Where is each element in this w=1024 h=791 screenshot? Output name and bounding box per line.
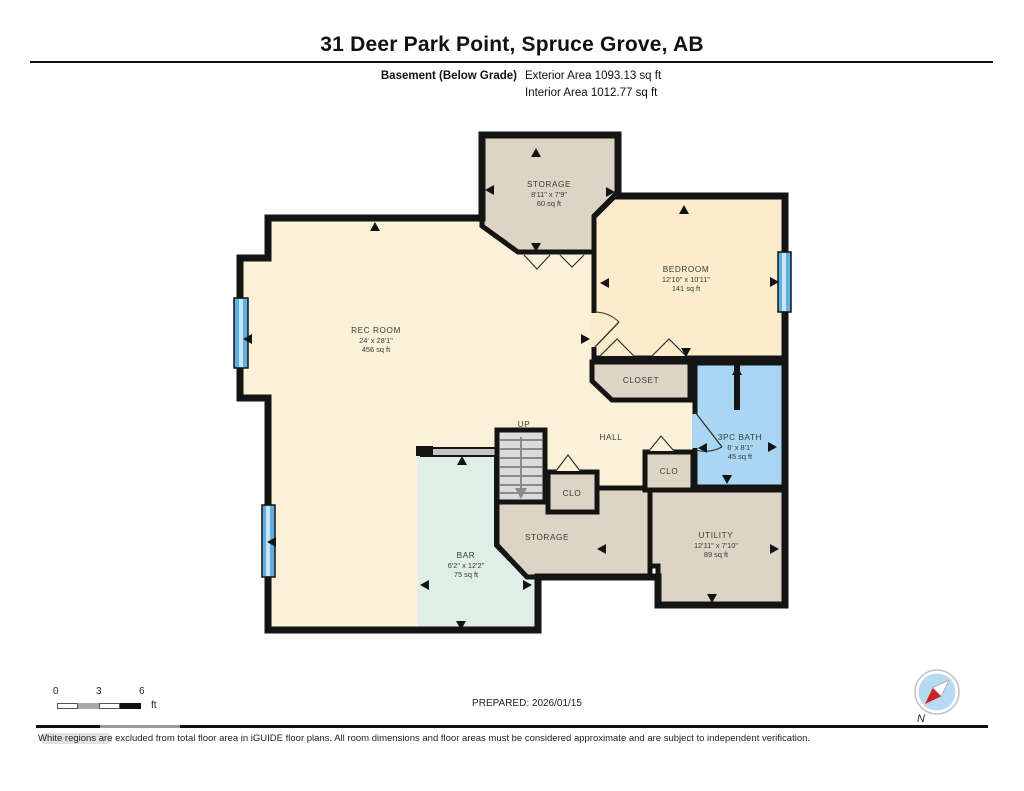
footer-divider-grey-segment — [100, 725, 180, 728]
compass-north-label: N — [917, 713, 925, 725]
storage-top-area: 60 sq ft — [537, 199, 561, 208]
clo-left-name: CLO — [563, 489, 582, 498]
utility-name: UTILITY — [699, 531, 734, 540]
page-title: 31 Deer Park Point, Spruce Grove, AB — [0, 33, 1024, 57]
floor-label: Basement (Below Grade) — [280, 70, 517, 82]
bar-area: 75 sq ft — [454, 570, 478, 579]
storage-top-name: STORAGE — [527, 180, 571, 189]
bedroom-dims: 12'10" x 10'11" — [662, 275, 711, 284]
rec-room-name: REC ROOM — [351, 326, 401, 335]
storage-bottom-name: STORAGE — [525, 533, 569, 542]
compass: N — [910, 668, 964, 726]
scale-segment-1 — [57, 703, 78, 709]
scale-tick-6: 6 — [139, 686, 145, 697]
scale-segment-2 — [78, 703, 99, 709]
bar-dims: 6'2" x 12'2" — [448, 561, 485, 570]
bar-name: BAR — [457, 551, 476, 560]
bath-name: 3PC BATH — [718, 433, 762, 442]
storage-top-dims: 8'11" x 7'9" — [531, 190, 567, 199]
bedroom-door-opening — [591, 313, 597, 347]
scale-segment-4 — [120, 703, 141, 709]
exterior-area: Exterior Area 1093.13 sq ft — [525, 70, 661, 82]
prepared-date: PREPARED: 2026/01/15 — [412, 698, 642, 709]
room-bath — [692, 363, 785, 487]
closet-name: CLOSET — [623, 376, 659, 385]
window-left-upper — [234, 298, 248, 368]
floor-plan: STORAGE 8'11" x 7'9" 60 sq ft BEDROOM 12… — [0, 0, 1024, 791]
scale-unit: ft — [151, 700, 157, 711]
rec-room-area: 456 sq ft — [362, 345, 390, 354]
bedroom-name: BEDROOM — [663, 265, 710, 274]
stairs — [497, 430, 545, 502]
bath-area: 45 sq ft — [728, 452, 752, 461]
disclaimer-text: White regions are excluded from total fl… — [38, 733, 998, 744]
utility-area: 89 sq ft — [704, 550, 728, 559]
window-bedroom-right — [778, 252, 791, 312]
utility-dims: 12'11" x 7'10" — [694, 541, 738, 550]
scale-tick-3: 3 — [96, 686, 102, 697]
hall-name: HALL — [600, 433, 623, 442]
interior-area: Interior Area 1012.77 sq ft — [525, 87, 657, 99]
stairs-up-label: UP — [518, 420, 531, 429]
bath-dims: 6' x 8'1" — [727, 443, 753, 452]
scale-tick-0: 0 — [53, 686, 59, 697]
bar-counter-end-wall — [416, 446, 433, 456]
rec-room-dims: 24' x 28'1" — [359, 336, 393, 345]
title-divider — [30, 61, 993, 63]
scale-segment-3 — [99, 703, 120, 709]
clo-right-name: CLO — [660, 467, 679, 476]
bath-door-opening — [692, 414, 698, 448]
bedroom-area: 141 sq ft — [672, 284, 700, 293]
